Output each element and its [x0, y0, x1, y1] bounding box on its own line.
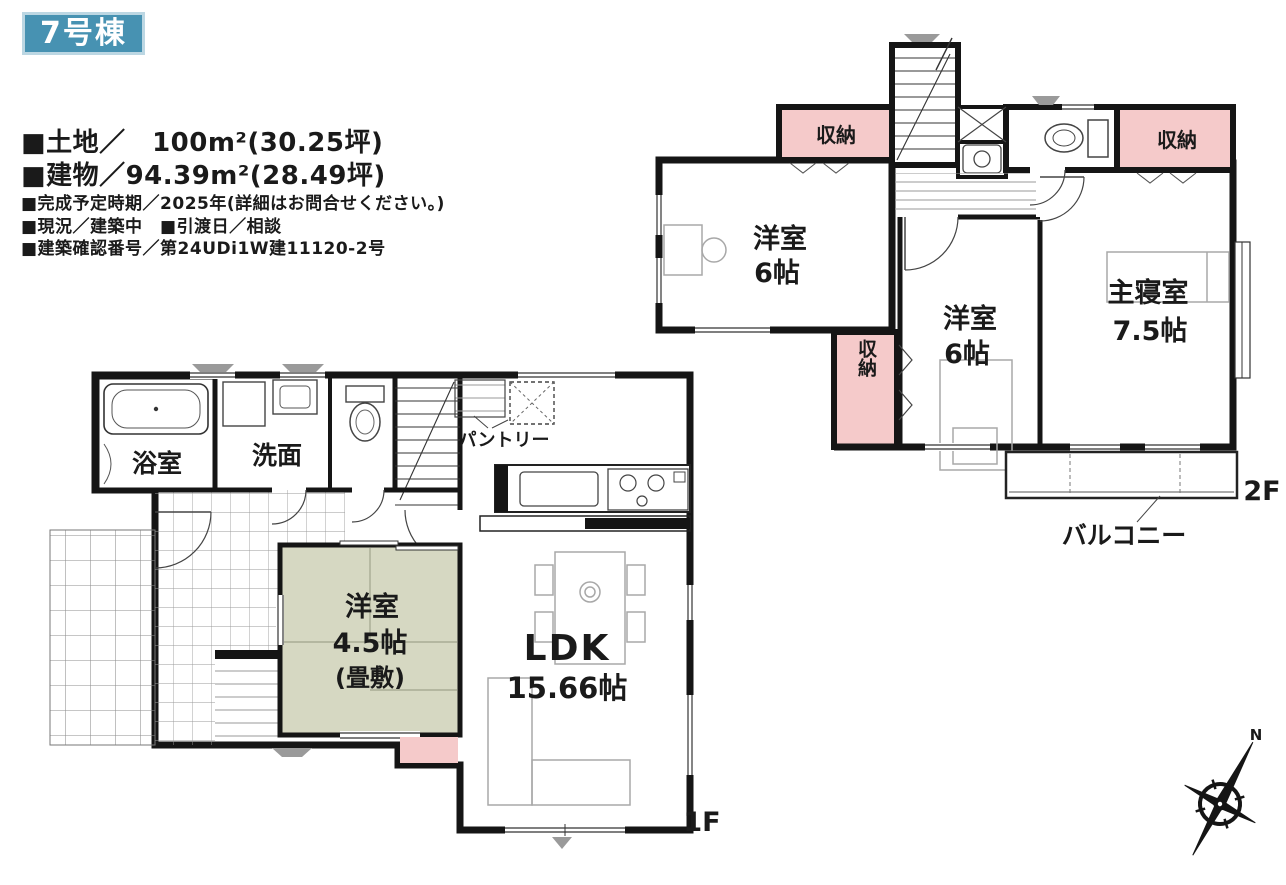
nook-pink [400, 737, 458, 763]
floor1-plan: 浴室 洗面 パントリー 洋室 4.5帖 (畳敷) LDK 15.66帖 1F [40, 360, 740, 860]
wash-corner-box [958, 142, 1006, 177]
tatami-label-3: (畳敷) [335, 664, 405, 692]
ldk-label-2: 15.66帖 [507, 671, 628, 705]
floor1-label: 1F [683, 807, 720, 838]
master-label-1: 主寝室 [1108, 277, 1189, 309]
tatami-label-2: 4.5帖 [333, 628, 408, 659]
closet-mid-label: 収納 [855, 339, 877, 377]
floor2-plan: 収納 収納 収納 洋室 6帖 洋室 6帖 主寝室 7.5帖 バルコニー 2F [640, 30, 1286, 560]
genkan-tiles-lower [155, 650, 215, 745]
pantry-shelf-icon [455, 380, 505, 417]
pantry-label: パントリー [459, 430, 550, 451]
washroom-label: 洗面 [252, 441, 302, 470]
bath-label: 浴室 [132, 449, 182, 478]
master-label-2: 7.5帖 [1113, 316, 1188, 347]
room-toilet-2f [1006, 107, 1117, 170]
floor2-label: 2F [1243, 476, 1280, 507]
closet-top-right-label: 収納 [1157, 128, 1197, 152]
west-center-label-2: 6帖 [944, 339, 990, 370]
completion-line: ■完成予定時期／2025年(詳細はお問合せください。) [21, 193, 445, 216]
west-left-label-2: 6帖 [754, 258, 800, 289]
property-info: ■土地／ 100m²(30.25坪) ■建物／94.39m²(28.49坪) ■… [21, 127, 445, 261]
balcony-label: バルコニー [1062, 521, 1187, 550]
balcony [1006, 452, 1237, 522]
ldk-label-1: LDK [524, 628, 611, 669]
building-area-line: ■建物／94.39m²(28.49坪) [21, 160, 445, 193]
tatami-label-1: 洋室 [345, 591, 399, 623]
entry-porch-tiles [50, 530, 155, 745]
west-left-label-1: 洋室 [753, 223, 807, 255]
compass-rose: N [1168, 722, 1286, 872]
floorplan-sheet: 7号棟 ■土地／ 100m²(30.25坪) ■建物／94.39m²(28.49… [0, 0, 1286, 885]
building-number-badge: 7号棟 [22, 12, 145, 55]
status-line: ■現況／建築中 ■引渡日／相談 [21, 216, 445, 239]
land-area-line: ■土地／ 100m²(30.25坪) [21, 127, 445, 160]
closet-top-left-label: 収納 [816, 123, 856, 147]
hallway-2f [895, 173, 1038, 215]
west-center-label-1: 洋室 [943, 303, 997, 335]
permit-number-line: ■建築確認番号／第24UDi1W建11120-2号 [21, 238, 445, 261]
compass-north-label: N [1250, 726, 1263, 744]
